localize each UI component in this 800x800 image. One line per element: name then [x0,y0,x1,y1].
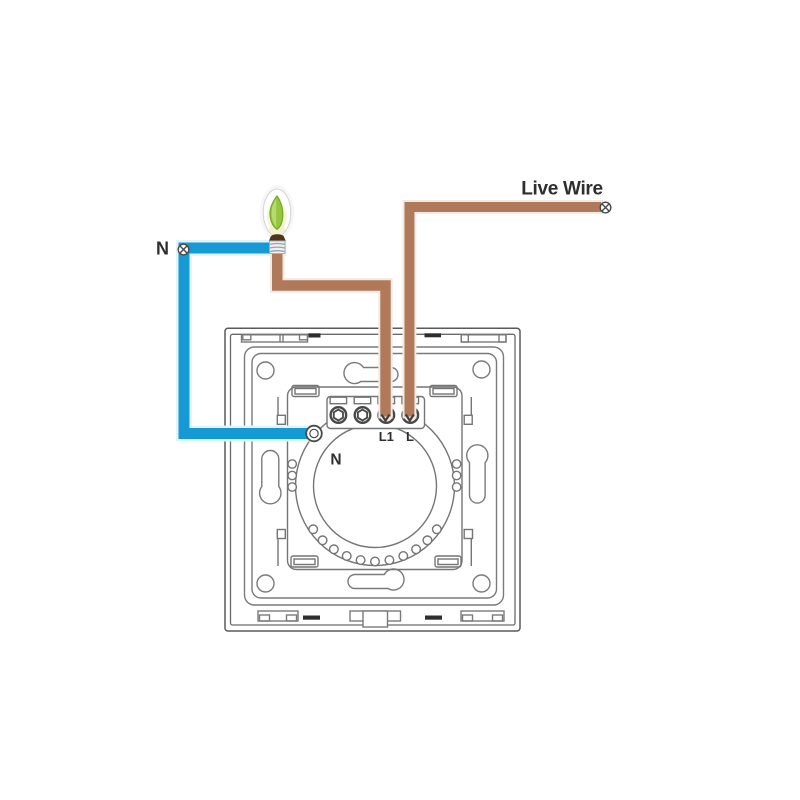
svg-text:N: N [156,239,169,259]
svg-text:Live Wire: Live Wire [521,179,603,200]
svg-text:L1: L1 [379,429,394,444]
svg-text:L: L [406,429,414,444]
svg-text:N: N [330,452,341,469]
